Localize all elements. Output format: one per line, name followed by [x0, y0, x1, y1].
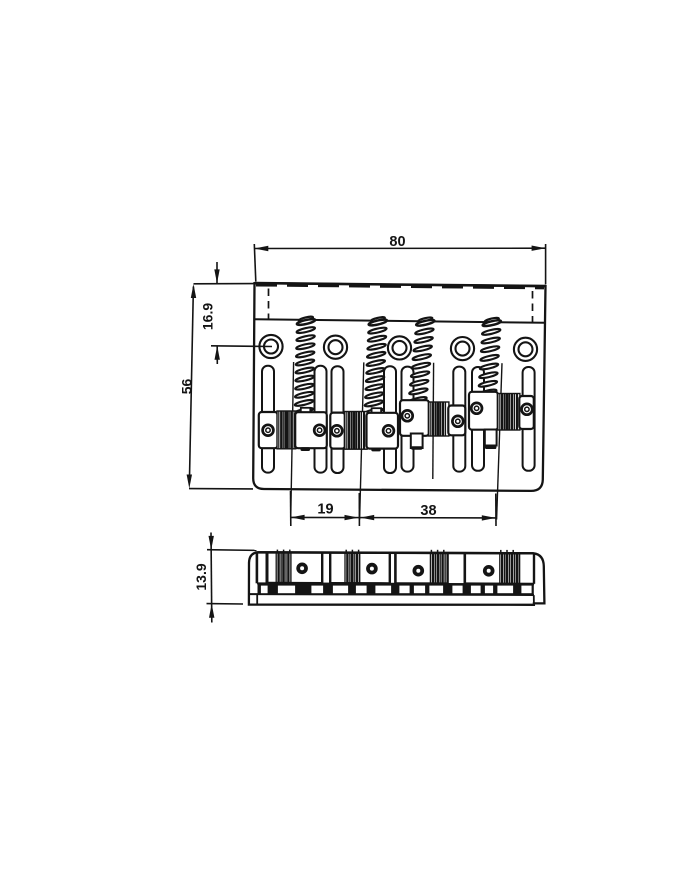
- svg-text:16.9: 16.9: [200, 303, 216, 330]
- svg-text:38: 38: [420, 503, 436, 519]
- svg-text:80: 80: [389, 234, 405, 250]
- svg-text:19: 19: [317, 502, 333, 518]
- svg-text:13.9: 13.9: [193, 563, 209, 590]
- svg-text:56: 56: [179, 379, 195, 395]
